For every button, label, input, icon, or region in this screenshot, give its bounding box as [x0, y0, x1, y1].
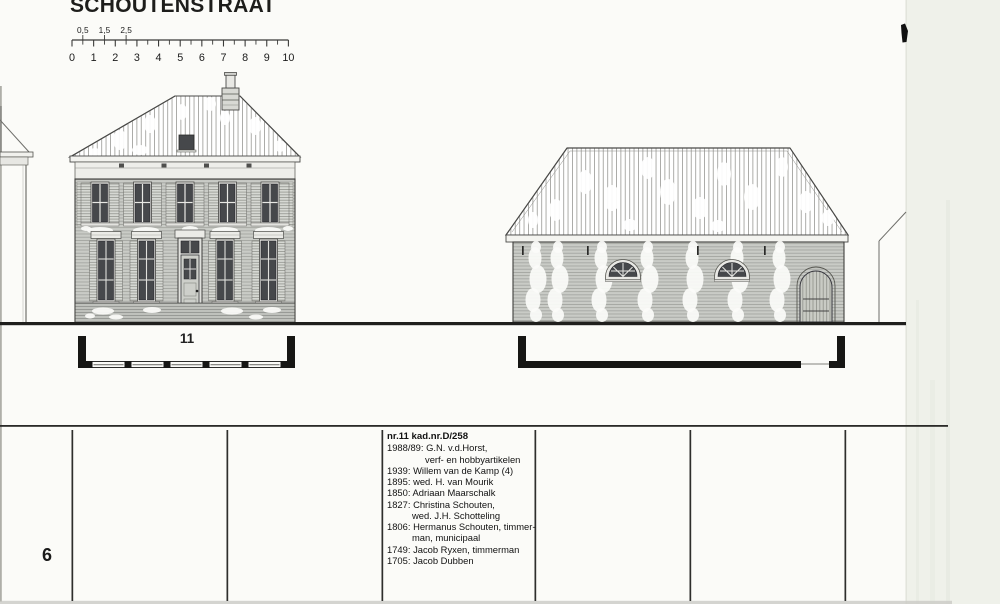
scale-unit-label: 0 [69, 52, 75, 64]
scale-half-label: 2,5 [120, 25, 132, 35]
scale-unit-label: 9 [264, 52, 270, 64]
upper-window [124, 182, 162, 226]
left-neighbour-fragment [0, 106, 33, 322]
attic-window [177, 135, 196, 152]
scanned-page: 0,51,52,5012345678910 SCHOUTENSTRAAT 11 … [0, 0, 1000, 604]
ground-window [209, 232, 242, 305]
history-block: nr.11 kad.nr.D/258 1988/89: G.N. v.d.Hor… [387, 431, 535, 566]
history-entry: 1827: Christina Schouten, [387, 499, 535, 510]
scale-unit-label: 1 [91, 52, 97, 64]
house-plinth [75, 303, 295, 323]
history-entry: 1705: Jacob Dubben [387, 555, 535, 566]
history-entry: 1806: Hermanus Schouten, timmer- [387, 521, 535, 532]
column-divider [690, 430, 692, 601]
scale-unit-label: 5 [177, 52, 183, 64]
ground-line [0, 322, 906, 325]
history-entry: verf- en hobbyartikelen [387, 454, 535, 465]
column-divider [845, 430, 847, 601]
scale-half-label: 1,5 [99, 25, 111, 35]
ground-window [130, 232, 163, 305]
column-divider [227, 430, 229, 601]
history-entry: 1939: Willem van de Kamp (4) [387, 465, 535, 476]
barn-floor-plan [518, 336, 845, 368]
scale-bar: 0,51,52,5012345678910 [69, 25, 294, 64]
house-cornice [70, 156, 300, 179]
upper-window [166, 182, 204, 226]
scale-half-label: 0,5 [77, 25, 89, 35]
wall-anchor [587, 246, 589, 255]
scale-unit-label: 2 [112, 52, 118, 64]
scale-unit-label: 10 [282, 52, 294, 64]
street-title: SCHOUTENSTRAAT [70, 0, 276, 18]
right-neighbour-fragment [879, 212, 906, 322]
scale-unit-label: 6 [199, 52, 205, 64]
ink-blob [901, 24, 908, 43]
scale-unit-label: 4 [156, 52, 162, 64]
page-number: 6 [42, 545, 52, 566]
history-entry: 1749: Jacob Ryxen, timmerman [387, 544, 535, 555]
scale-unit-label: 8 [242, 52, 248, 64]
barn-elevation [506, 148, 848, 322]
history-entries: 1988/89: G.N. v.d.Horst,verf- en hobbyar… [387, 442, 535, 566]
history-entry: 1850: Adriaan Maarschalk [387, 487, 535, 498]
upper-window [251, 182, 289, 226]
scale-unit-label: 3 [134, 52, 140, 64]
upper-window [81, 182, 119, 226]
history-entry: man, municipaal [387, 532, 535, 543]
history-entry: wed. J.H. Schotteling [387, 510, 535, 521]
ground-window [90, 232, 123, 305]
history-entry: 1895: wed. H. van Mourik [387, 476, 535, 487]
upper-window [209, 182, 247, 226]
barn-roof [506, 148, 848, 235]
scale-unit-label: 7 [220, 52, 226, 64]
wall-anchor [697, 246, 699, 255]
history-heading: nr.11 kad.nr.D/258 [387, 431, 535, 442]
column-divider [382, 430, 384, 601]
plan-number-label: 11 [174, 331, 200, 346]
history-entry: 1988/89: G.N. v.d.Horst, [387, 442, 535, 453]
wall-anchor [764, 246, 766, 255]
ground-window [252, 232, 285, 305]
chimney [222, 73, 239, 111]
column-divider [72, 430, 74, 601]
wall-anchor [522, 246, 524, 255]
house-11-elevation [70, 73, 300, 324]
